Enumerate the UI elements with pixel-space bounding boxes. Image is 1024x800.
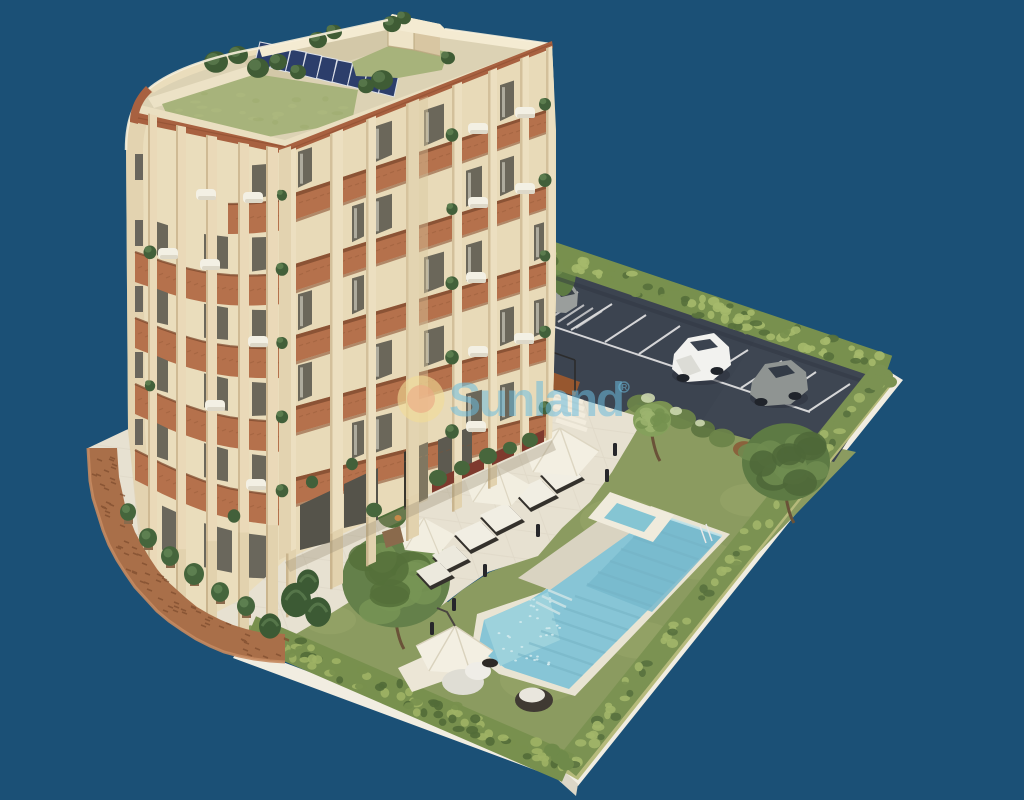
svg-text:R: R [622,383,628,392]
svg-text:Sunland: Sunland [449,374,623,427]
